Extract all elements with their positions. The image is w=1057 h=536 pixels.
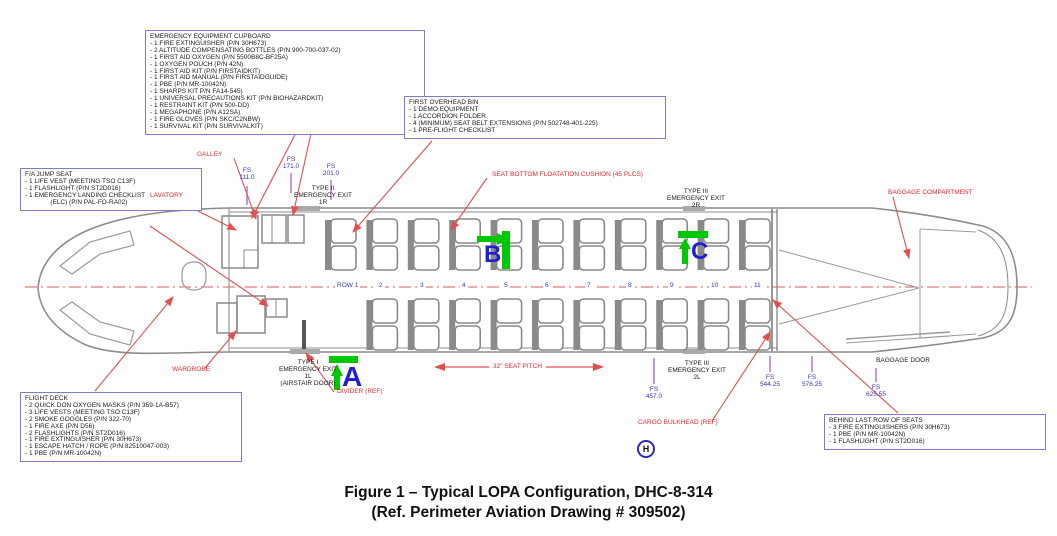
row-marker: 6 <box>543 282 551 290</box>
marker-letter-c: C <box>691 238 708 266</box>
baggage-door-label: BAGGAGE DOOR <box>866 357 940 364</box>
type3-exit-2r-label: TYPE IIIEMERGENCY EXIT2R <box>656 188 736 209</box>
callout-items: - 2 QUICK DON OXYGEN MASKS (P/N 359-1A-B… <box>25 403 237 458</box>
seat-unit <box>573 219 604 270</box>
seat-unit <box>615 219 646 270</box>
seat-unit <box>408 299 439 350</box>
seat-unit <box>532 299 563 350</box>
wardrobe-label: WARDROBE <box>172 366 210 373</box>
fs-station-label: FS576.25 <box>794 374 830 388</box>
figure-caption-line2: (Ref. Perimeter Aviation Drawing # 30950… <box>0 503 1057 523</box>
galley-label: GALLEY <box>197 151 222 158</box>
seat-unit <box>573 299 604 350</box>
baggage-compartment-label: BAGGAGE COMPARTMENT <box>888 189 973 196</box>
type3-exit-2l-label: TYPE IIIEMERGENCY EXIT2L <box>657 360 737 381</box>
seat-unit <box>698 299 729 350</box>
marker-letter-a: A <box>342 361 362 393</box>
row-marker: ROW 1 <box>335 282 360 290</box>
lavatory-label: LAVATORY <box>150 192 183 199</box>
callout-behind-last-row: BEHIND LAST ROW OF SEATS - 3 FIRE EXTING… <box>824 414 1046 450</box>
fuselage-outline <box>38 208 1017 353</box>
callout-items: - 3 FIRE EXTINGUISHERS (P/N 30H673)- 1 P… <box>829 425 1041 446</box>
figure-caption-line1: Figure 1 – Typical LOPA Configuration, D… <box>0 483 1057 503</box>
cargo-bulkhead-label: CARGO BULKHEAD (REF) <box>638 419 718 426</box>
seat-unit <box>449 299 480 350</box>
fs-station-label: FS625.55 <box>858 384 894 398</box>
seat-pitch-label: 32" SEAT PITCH <box>489 363 546 370</box>
cabin-monuments <box>217 215 306 351</box>
seat-unit <box>408 219 439 270</box>
seat-unit <box>739 219 770 270</box>
cargo-bulkhead <box>772 209 777 351</box>
seat-unit <box>739 299 770 350</box>
row-marker: 4 <box>460 282 468 290</box>
hatch-letter: H <box>638 444 654 454</box>
seat-unit <box>532 219 563 270</box>
row-marker: 8 <box>626 282 634 290</box>
row-marker: 2 <box>377 282 385 290</box>
seat-cushion-label: SEAT BOTTOM FLOATATION CUSHION (45 PLCS) <box>492 171 643 178</box>
galley-unit-1 <box>262 215 286 243</box>
galley-unit-2 <box>288 215 304 243</box>
cabin-divider <box>302 320 306 351</box>
row-marker: 10 <box>709 282 720 290</box>
fs-station-label: FS457.0 <box>636 386 672 400</box>
callout-flight-deck: FLIGHT DECK - 2 QUICK DON OXYGEN MASKS (… <box>20 392 242 462</box>
row-marker: 9 <box>668 282 676 290</box>
row-marker: 3 <box>418 282 426 290</box>
fs-station-label: FS111.0 <box>229 167 265 181</box>
callout-fa-jump-seat: F/A JUMP SEAT - 1 LIFE VEST (MEETING TSO… <box>20 168 202 211</box>
callout-items: - 1 DEMO EQUIPMENT- 1 ACCORDION FOLDER- … <box>409 107 661 135</box>
cockpit-windscreen <box>60 208 229 352</box>
wardrobe-unit-1 <box>217 303 237 333</box>
fs-station-label: FS201.0 <box>313 163 349 177</box>
baggage-door-outline <box>846 332 950 339</box>
row-marker: 11 <box>752 282 763 290</box>
lavatory-unit <box>222 216 258 268</box>
seat-unit <box>366 299 397 350</box>
fs-station-label: FS171.0 <box>273 156 309 170</box>
baggage-compartment-outline <box>779 229 976 343</box>
fs-station-label: FS544.25 <box>752 374 788 388</box>
seat-unit <box>491 299 522 350</box>
marker-letter-b: B <box>484 241 501 269</box>
lopa-diagram: EMERGENCY EQUIPMENT CUPBOARD - 1 FIRE EX… <box>0 0 1057 536</box>
type2-exit-1r-label: TYPE IIEMERGENCY EXIT1R <box>283 185 363 206</box>
type1-exit-1l-label: TYPE IEMERGENCY EXIT1L(AIRSTAIR DOOR) <box>268 359 348 387</box>
row-marker: 5 <box>502 282 510 290</box>
figure-caption: Figure 1 – Typical LOPA Configuration, D… <box>0 483 1057 523</box>
callout-items: - 1 FIRE EXTINGUISHER (P/N 30H673)- 2 AL… <box>150 41 420 131</box>
callout-first-overhead-bin: FIRST OVERHEAD BIN - 1 DEMO EQUIPMENT- 1… <box>404 96 666 139</box>
row-marker: 7 <box>585 282 593 290</box>
callout-emergency-equipment-cupboard: EMERGENCY EQUIPMENT CUPBOARD - 1 FIRE EX… <box>145 30 425 135</box>
seat-unit <box>615 299 646 350</box>
seat-unit <box>656 299 687 350</box>
seat-unit <box>325 219 356 270</box>
seat-unit <box>366 219 397 270</box>
